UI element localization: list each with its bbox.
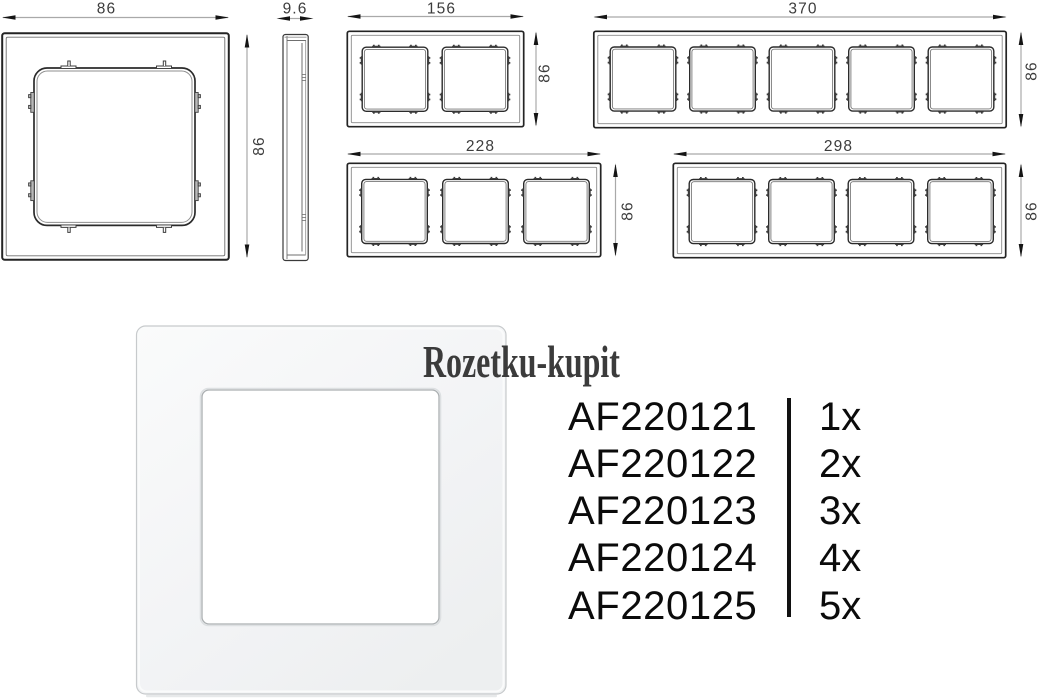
svg-text:86: 86 (537, 63, 554, 82)
svg-text:228: 228 (466, 138, 495, 155)
svg-text:370: 370 (788, 1, 817, 18)
svg-text:86: 86 (620, 201, 637, 220)
svg-text:86: 86 (1024, 61, 1039, 80)
svg-text:86: 86 (97, 1, 116, 18)
svg-text:86: 86 (1024, 201, 1039, 220)
svg-text:156: 156 (427, 1, 456, 18)
svg-text:298: 298 (824, 138, 853, 155)
svg-text:9.6: 9.6 (283, 1, 308, 18)
svg-text:86: 86 (251, 136, 268, 155)
